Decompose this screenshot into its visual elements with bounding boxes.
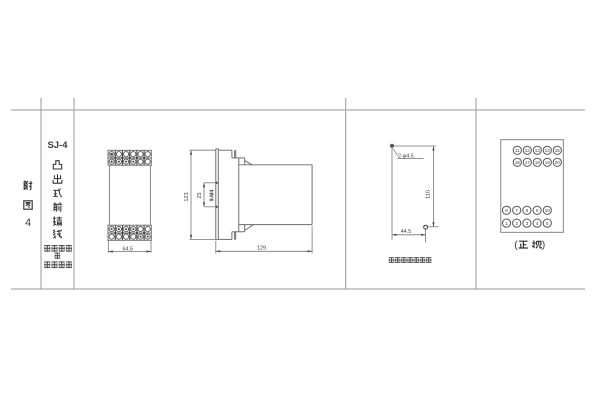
- svg-text:4: 4: [536, 221, 539, 226]
- svg-text:2-φ4.5: 2-φ4.5: [398, 153, 414, 159]
- svg-text:10: 10: [545, 208, 551, 213]
- svg-text:13: 13: [535, 148, 541, 153]
- svg-text:6: 6: [505, 208, 508, 213]
- svg-text:15: 15: [555, 148, 561, 153]
- svg-text:19: 19: [545, 160, 551, 165]
- svg-text:4: 4: [25, 217, 31, 229]
- svg-text:3: 3: [526, 221, 529, 226]
- svg-text:9-M4: 9-M4: [210, 189, 216, 201]
- svg-text:123: 123: [184, 192, 190, 201]
- svg-text:12: 12: [525, 148, 531, 153]
- svg-text:17: 17: [525, 160, 531, 165]
- svg-text:129: 129: [257, 246, 266, 252]
- svg-text:18: 18: [535, 160, 541, 165]
- svg-text:9: 9: [536, 208, 539, 213]
- svg-text:2: 2: [515, 221, 518, 226]
- svg-text:44.5: 44.5: [401, 229, 412, 235]
- svg-text:20: 20: [555, 160, 561, 165]
- svg-text:(: (: [514, 239, 518, 251]
- svg-text:7: 7: [515, 208, 518, 213]
- svg-text:SJ-4: SJ-4: [47, 140, 68, 151]
- svg-text:1: 1: [505, 221, 508, 226]
- svg-text:64.5: 64.5: [123, 246, 134, 252]
- svg-text:25: 25: [197, 192, 203, 198]
- svg-text:14: 14: [545, 148, 551, 153]
- svg-text:110: 110: [425, 190, 431, 199]
- svg-text:8: 8: [526, 208, 529, 213]
- svg-text:): ): [542, 239, 546, 251]
- svg-text:11: 11: [515, 148, 520, 153]
- svg-text:5: 5: [546, 221, 549, 226]
- svg-text:16: 16: [515, 160, 521, 165]
